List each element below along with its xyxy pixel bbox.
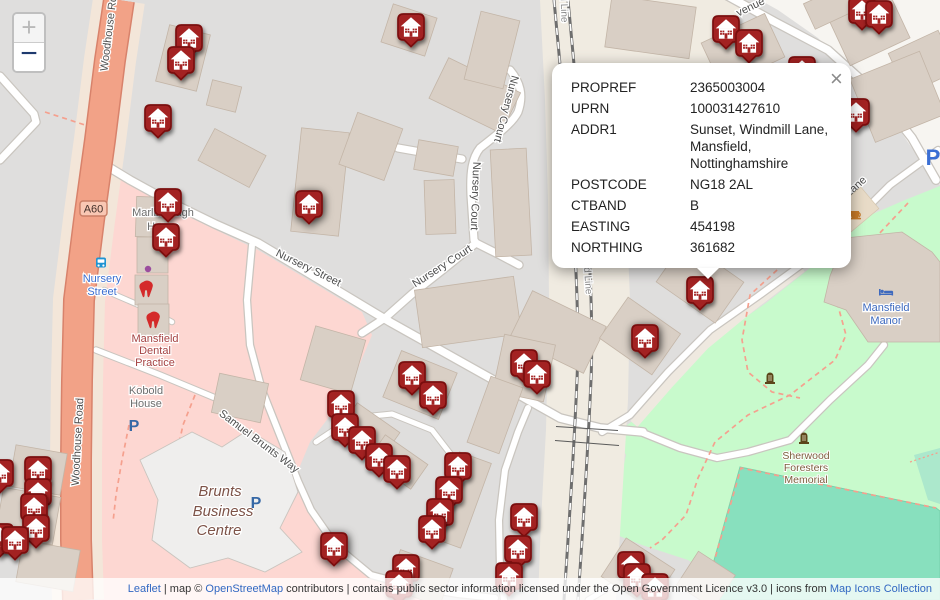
svg-text:P: P: [251, 495, 262, 512]
svg-text:P: P: [926, 145, 940, 170]
svg-text:Centre: Centre: [196, 522, 241, 539]
svg-text:Business: Business: [193, 503, 254, 520]
svg-text:Nursery: Nursery: [83, 273, 122, 285]
svg-text:Brunts: Brunts: [198, 483, 242, 500]
svg-text:d Line: d Line: [558, 0, 570, 23]
svg-text:Practice: Practice: [135, 357, 175, 369]
svg-text:Kobold: Kobold: [129, 385, 163, 397]
svg-text:Mansfield: Mansfield: [862, 302, 909, 314]
svg-text:Foresters: Foresters: [784, 462, 828, 474]
svg-text:Manor: Manor: [870, 315, 902, 327]
svg-text:House: House: [130, 398, 162, 410]
svg-text:Mansfield: Mansfield: [131, 333, 178, 345]
svg-text:A60: A60: [84, 204, 104, 216]
svg-text:P: P: [129, 418, 140, 435]
svg-text:d Line: d Line: [581, 267, 594, 295]
svg-text:Nursery Court: Nursery Court: [468, 162, 482, 231]
svg-text:Dental: Dental: [139, 345, 171, 357]
svg-text:Memorial: Memorial: [784, 474, 827, 486]
svg-text:Street: Street: [87, 286, 116, 298]
svg-text:Sherwood: Sherwood: [782, 450, 829, 462]
